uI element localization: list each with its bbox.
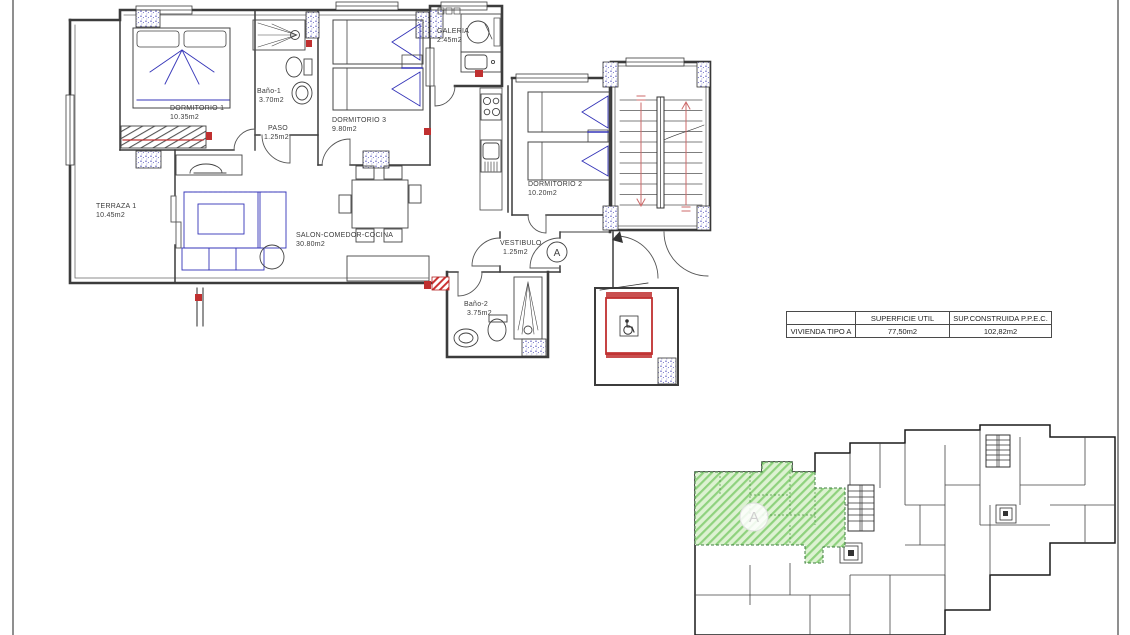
label-bano1: Baño-1 [257,88,281,95]
label-dorm1: DORMITORIO 1 [170,105,224,112]
kitchen-sink-symbol [481,140,501,172]
header-superficie-util: SUPERFICIE UTIL [856,312,950,325]
header-sup-construida: SUP.CONSTRUIDA P.P.E.C. [950,312,1052,325]
label-terraza: TERRAZA 1 [96,203,136,210]
label-paso-area: 1.25m2 [264,134,289,141]
table-row: VIVIENDA TIPO A 77,50m2 102,82m2 [787,325,1052,338]
label-dorm2-area: 10.20m2 [528,190,557,197]
label-galeria: GALERIA [437,28,469,35]
dining-table-symbol [339,166,421,242]
label-salon: SALON-COMEDOR-COCINA [296,232,393,239]
drawing-sheet: A TERRAZA 1 10.45m2 DORMITORIO 1 10.35m2… [0,0,1130,635]
twin-beds-dorm3 [333,20,423,110]
sideboard-symbol [347,256,429,281]
unit-marker-letter: A [554,248,561,259]
tv-cabinet-symbol [176,155,242,175]
label-dorm3: DORMITORIO 3 [332,117,386,124]
keyplan-unit-marker-letter: A [749,509,759,526]
label-galeria-area: 2.45m2 [437,37,462,44]
elevator-symbol [600,283,652,358]
key-plan: A [695,425,1115,635]
wheelchair-icon [620,316,638,336]
label-bano1-area: 3.70m2 [259,97,284,104]
label-dorm1-area: 10.35m2 [170,114,199,121]
header-empty-cell [787,312,856,325]
label-dorm2: DORMITORIO 2 [528,181,582,188]
label-paso: PASO [268,125,288,132]
area-summary-table: SUPERFICIE UTIL SUP.CONSTRUIDA P.P.E.C. … [786,311,1052,338]
stove-symbol [481,94,501,120]
kitchen-counter [480,88,502,210]
double-bed-symbol [133,28,230,108]
door-arcs [171,86,708,296]
label-vestibulo: VESTIBULO [500,240,542,247]
cell-vivienda-tipo: VIVIENDA TIPO A [787,325,856,338]
room-labels: TERRAZA 1 10.45m2 DORMITORIO 1 10.35m2 B… [96,28,582,317]
red-accent-marks [195,40,483,301]
label-bano2-area: 3.75m2 [467,310,492,317]
twin-beds-dorm2 [528,92,610,180]
cell-sup-construida: 102,82m2 [950,325,1052,338]
label-terraza-area: 10.45m2 [96,212,125,219]
wardrobe-symbol [121,126,212,148]
table-header-row: SUPERFICIE UTIL SUP.CONSTRUIDA P.P.E.C. [787,312,1052,325]
cell-superficie-util: 77,50m2 [856,325,950,338]
label-salon-area: 30.80m2 [296,241,325,248]
sofa-symbol [182,192,286,270]
label-vestibulo-area: 1.25m2 [503,249,528,256]
label-bano2: Baño-2 [464,301,488,308]
label-dorm3-area: 9.80m2 [332,126,357,133]
apartment-plan: A TERRAZA 1 10.45m2 DORMITORIO 1 10.35m2… [66,2,710,385]
unit-marker: A [547,242,567,262]
stairs-symbol [620,96,704,211]
